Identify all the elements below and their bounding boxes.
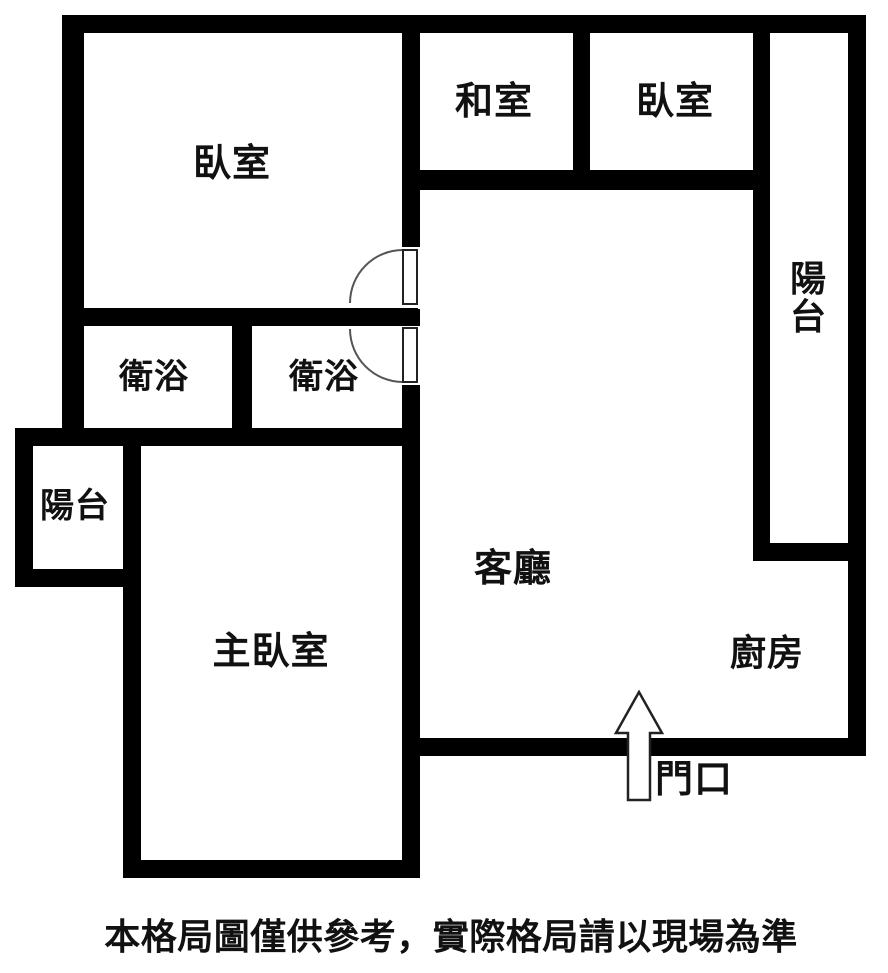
wall-balcony-left-outer (15, 428, 33, 587)
label-bathroom-1: 衛浴 (119, 360, 189, 396)
bathroom-door-leaf (402, 327, 418, 383)
label-kitchen: 廚房 (730, 634, 804, 672)
label-bedroom-top-left: 臥室 (193, 145, 271, 185)
label-balcony-right: 陽台 (788, 260, 828, 336)
label-living-room: 客廳 (474, 550, 552, 590)
wall-balcony-right-left (753, 15, 770, 561)
label-bathroom-2: 衛浴 (289, 360, 359, 396)
label-bedroom-top-right: 臥室 (636, 83, 714, 123)
wall-middle-lower (402, 385, 420, 878)
floor-plan: 臥室 和室 臥室 陽台 衛浴 衛浴 陽台 主臥室 客廳 廚房 門口 本格局圖僅供… (0, 0, 888, 973)
wall-left-outer (62, 15, 84, 446)
label-master-bedroom: 主臥室 (212, 633, 329, 673)
entrance-arrow-icon (612, 688, 668, 804)
wall-bathroom-divider (232, 308, 252, 446)
wall-tatami-divider (573, 15, 590, 190)
wall-middle-stub (402, 309, 420, 326)
bedroom-door-leaf (402, 249, 418, 305)
wall-top-outer (62, 15, 866, 33)
wall-bathrooms-bottom (15, 428, 418, 446)
wall-right-outer (848, 15, 866, 756)
disclaimer-caption: 本格局圖僅供參考，實際格局請以現場為準 (104, 908, 798, 960)
wall-middle-upper (402, 15, 420, 247)
label-tatami-room: 和室 (455, 83, 533, 123)
wall-master-left (123, 428, 141, 878)
wall-master-bottom (123, 860, 418, 878)
bedroom-door-arc (349, 249, 403, 303)
label-balcony-left: 陽台 (40, 489, 110, 525)
